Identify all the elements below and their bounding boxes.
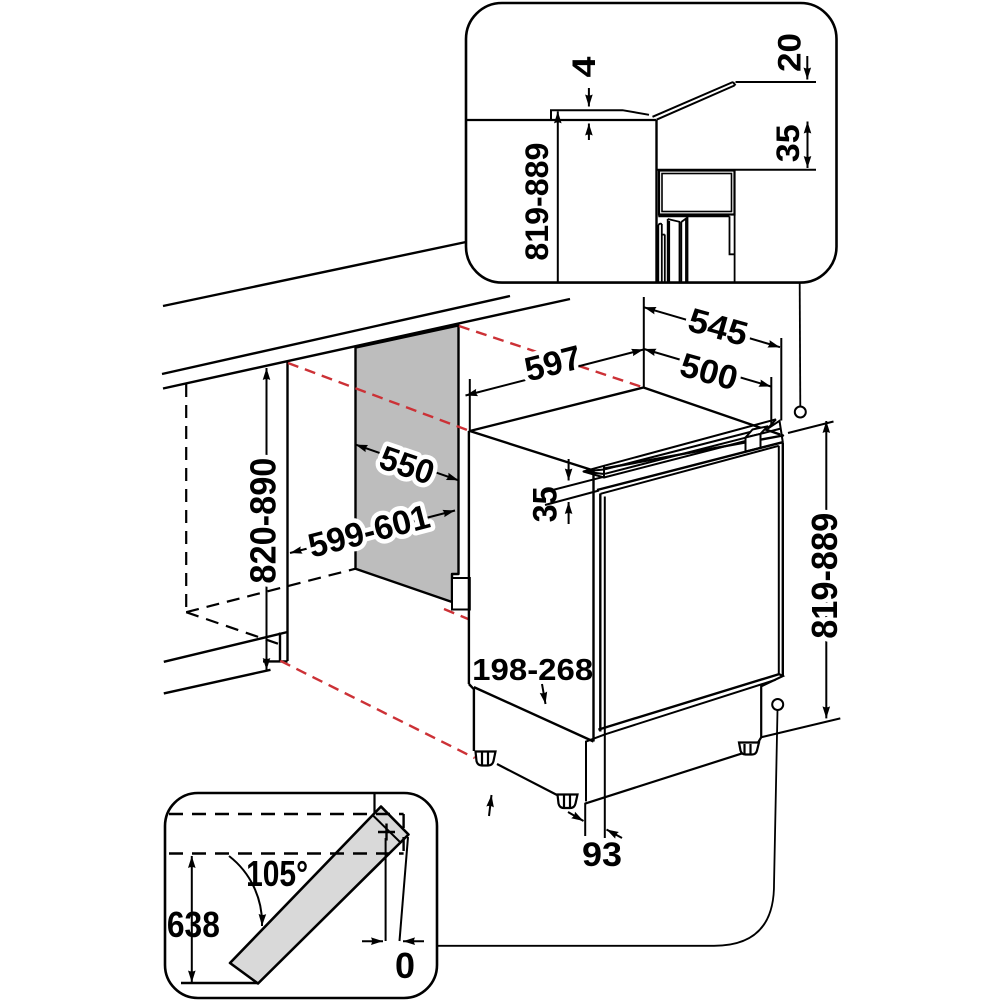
svg-text:0: 0 — [395, 945, 415, 986]
svg-text:20: 20 — [772, 33, 808, 72]
svg-text:105°: 105° — [246, 853, 308, 894]
svg-text:819-889: 819-889 — [804, 513, 845, 639]
svg-text:35: 35 — [527, 486, 565, 522]
svg-text:638: 638 — [167, 904, 220, 945]
svg-text:820-890: 820-890 — [243, 458, 284, 584]
svg-text:198-268: 198-268 — [472, 652, 593, 687]
svg-text:93: 93 — [582, 836, 622, 874]
svg-text:35: 35 — [770, 124, 806, 162]
svg-text:4: 4 — [566, 56, 602, 77]
svg-text:819-889: 819-889 — [519, 143, 555, 261]
